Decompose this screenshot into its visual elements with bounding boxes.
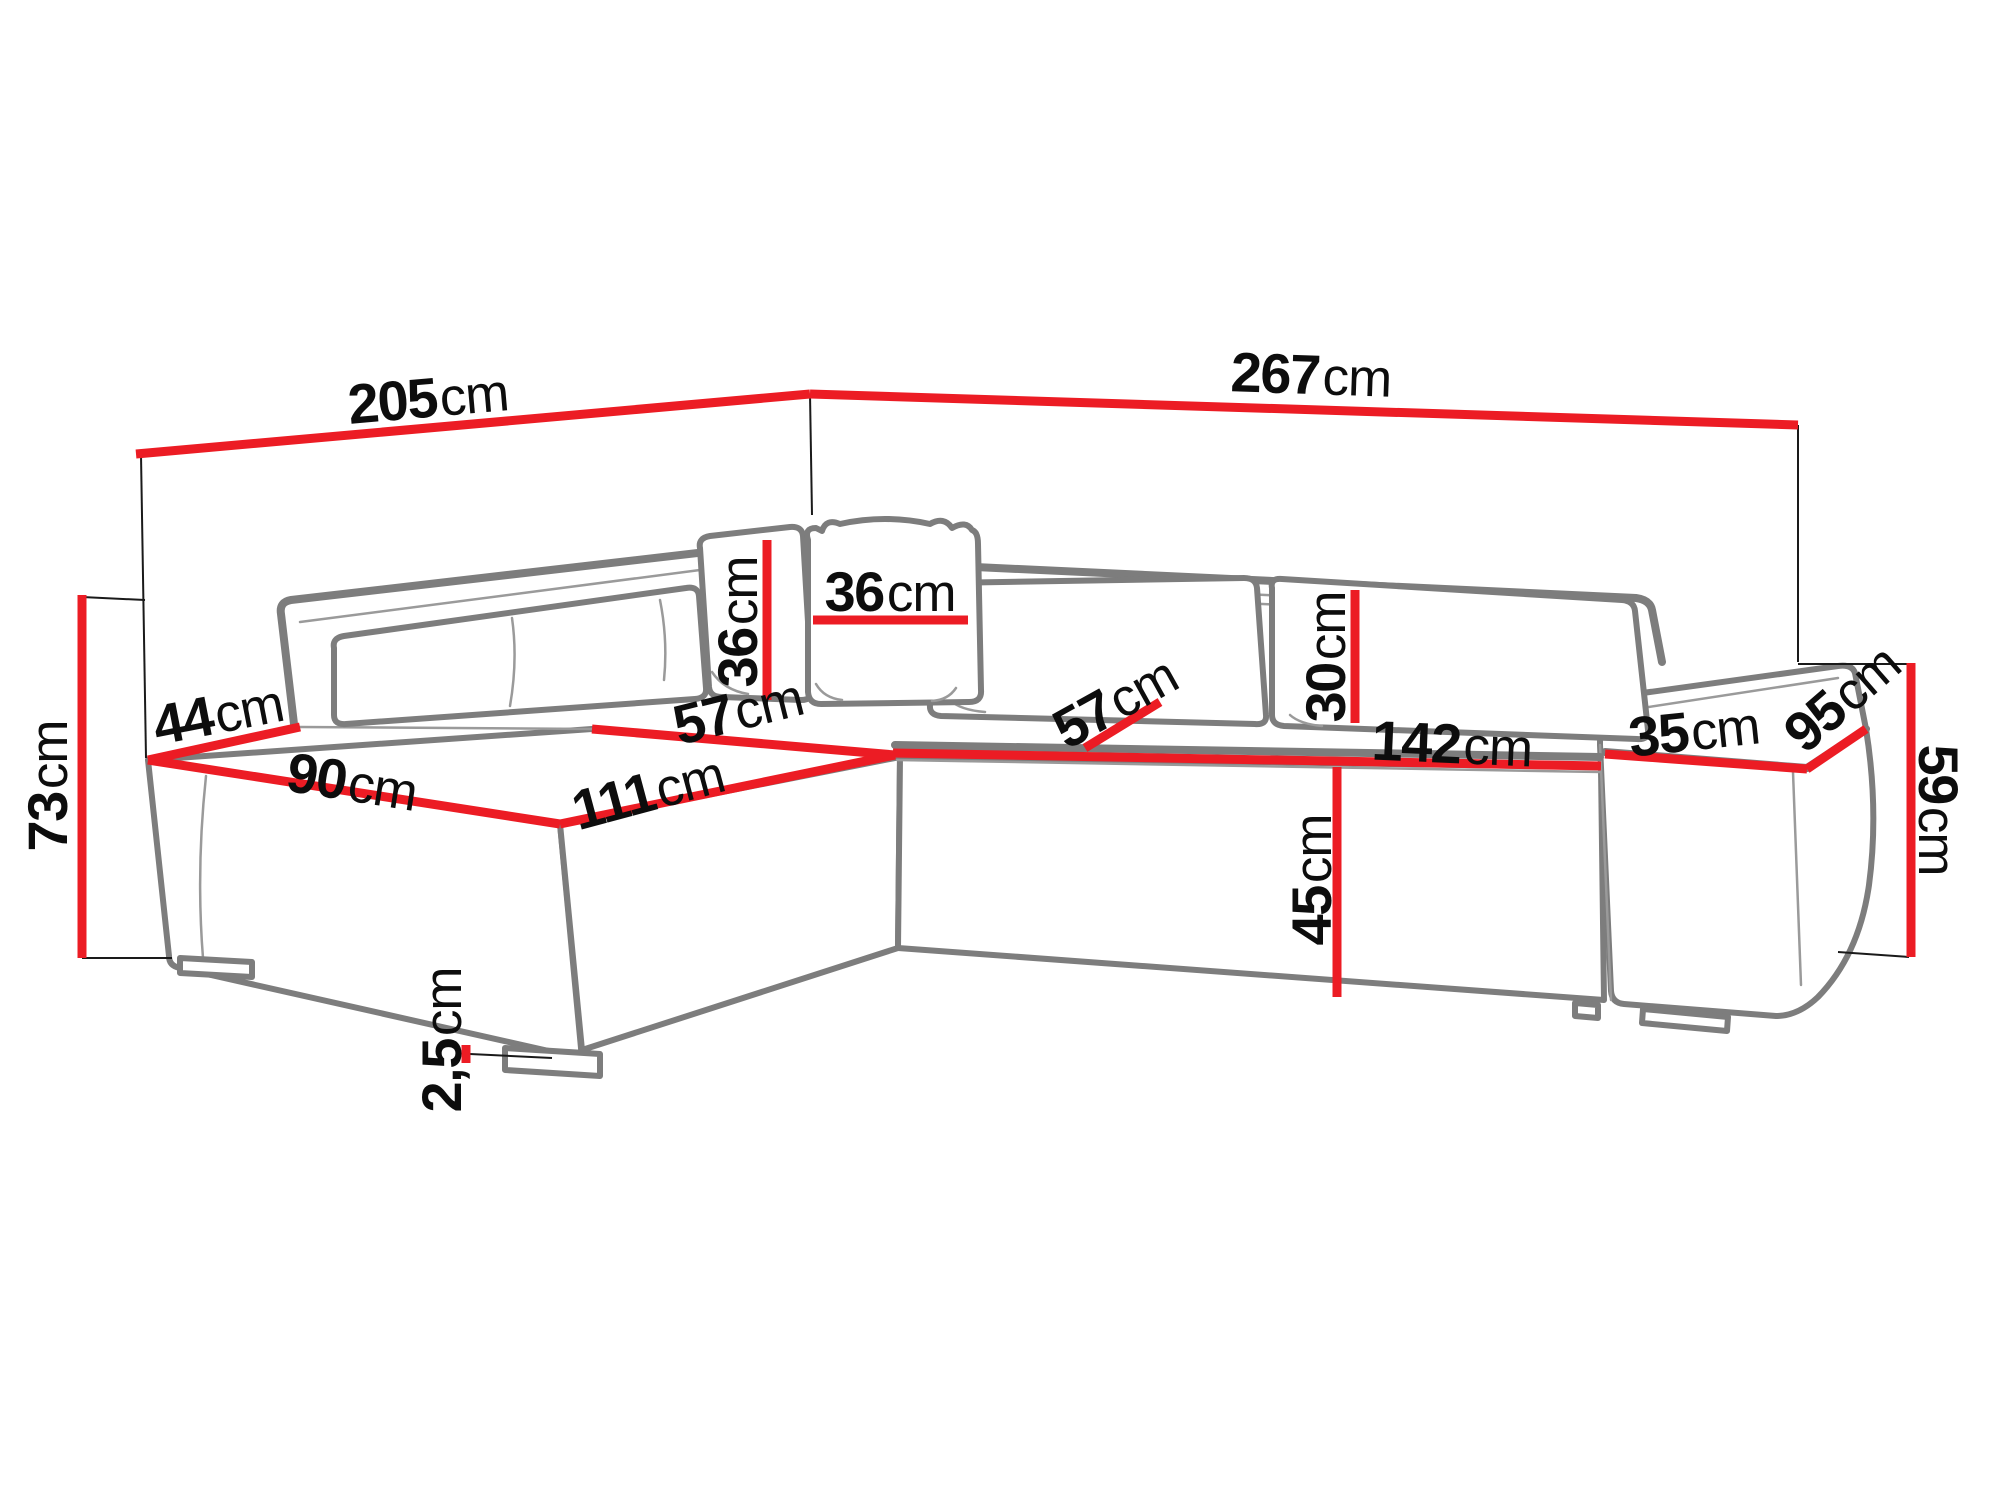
dim-line-267 bbox=[810, 394, 1798, 425]
seat-back-edge bbox=[300, 727, 592, 729]
foot-main-right bbox=[1575, 1003, 1598, 1018]
main-front-face bbox=[898, 757, 1604, 1000]
back-cushion-2 bbox=[1272, 579, 1648, 739]
pillow-left bbox=[700, 527, 812, 700]
ext-73-top bbox=[82, 597, 145, 600]
foot-left bbox=[180, 958, 252, 977]
dimension-diagram: 205cm 267cm 73cm 44cm 90cm 111cm 57cm 36… bbox=[0, 0, 2000, 1500]
pillow-right bbox=[807, 519, 981, 704]
chaise-back-cushion bbox=[334, 588, 706, 724]
foot-chaise-front bbox=[505, 1048, 600, 1076]
sofa-line-art bbox=[0, 0, 2000, 1500]
ext-205-left bbox=[141, 455, 146, 758]
dim-line-205 bbox=[136, 394, 810, 454]
ext-corner bbox=[810, 394, 812, 515]
